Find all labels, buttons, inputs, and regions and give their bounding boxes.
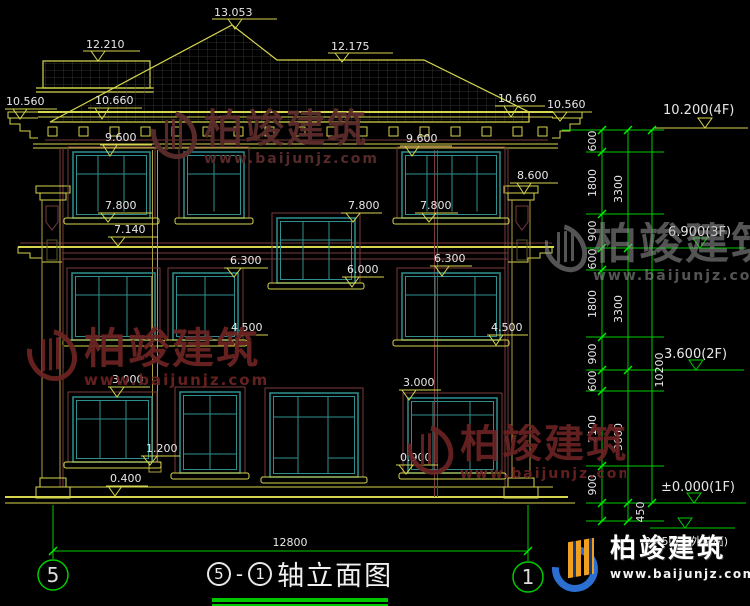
svg-text:12.210: 12.210 (86, 38, 125, 51)
svg-text:0.400: 0.400 (110, 472, 142, 485)
dim-ticks (598, 126, 656, 525)
svg-text:1800: 1800 (586, 169, 599, 197)
svg-text:±0.000(1F): ±0.000(1F) (661, 480, 735, 495)
site-logo-url: www.baijunjz.com (610, 568, 750, 580)
title-axis-right: 1 (248, 562, 272, 586)
svg-text:10.660: 10.660 (95, 94, 134, 107)
window-2f-left (63, 268, 164, 346)
svg-text:600: 600 (586, 249, 599, 270)
svg-text:600: 600 (586, 131, 599, 152)
svg-text:450: 450 (634, 502, 647, 523)
drawing-title: 5 - 1 轴立面图 (170, 554, 430, 606)
flag-3000-left: 3.000 (108, 373, 150, 397)
svg-text:4.500: 4.500 (231, 321, 263, 334)
svg-text:0.900: 0.900 (400, 451, 432, 464)
window-1f-right (399, 393, 506, 479)
title-axis-left: 5 (207, 562, 231, 586)
svg-text:9.600: 9.600 (406, 132, 438, 145)
title-text: 轴立面图 (277, 554, 393, 593)
window-2f-right (393, 268, 509, 346)
window-stair (268, 213, 364, 289)
svg-text:6.900(3F): 6.900(3F) (668, 225, 731, 240)
flag-12175: 12.175 (328, 40, 393, 62)
svg-text:9.600: 9.600 (105, 131, 137, 144)
pilaster-left (36, 186, 70, 498)
svg-text:10200: 10200 (653, 353, 666, 388)
site-logo: 柏竣建筑 www.baijunjz.com (552, 536, 750, 596)
bottom-dim-label: 12800 (273, 536, 308, 549)
flag-f1: ±0.000(1F) (653, 480, 746, 503)
flag-0400: 0.400 (106, 472, 148, 496)
mid-floor-band (18, 243, 554, 262)
window-3f-left (64, 147, 159, 224)
svg-text:900: 900 (586, 344, 599, 365)
svg-text:1800: 1800 (586, 290, 599, 318)
svg-text:10.660: 10.660 (498, 92, 537, 105)
svg-text:4.500: 4.500 (491, 321, 523, 334)
svg-text:12.175: 12.175 (331, 40, 370, 53)
svg-text:10.560: 10.560 (547, 98, 586, 111)
svg-text:3600: 3600 (612, 423, 625, 451)
svg-text:8.600: 8.600 (517, 169, 549, 182)
svg-text:3300: 3300 (612, 175, 625, 203)
svg-text:900: 900 (586, 475, 599, 496)
svg-text:10.560: 10.560 (6, 95, 45, 108)
eave-cornice (8, 112, 582, 148)
svg-text:6.000: 6.000 (347, 263, 379, 276)
svg-text:7.800: 7.800 (420, 199, 452, 212)
site-logo-brand: 柏竣建筑 (610, 536, 750, 562)
svg-text:600: 600 (586, 371, 599, 392)
svg-text:7.800: 7.800 (348, 199, 380, 212)
flag-f3: 6.900(3F) (660, 225, 746, 248)
svg-text:6.300: 6.300 (434, 252, 466, 265)
svg-text:3.600(2F): 3.600(2F) (664, 347, 727, 362)
window-1f-centre (261, 388, 367, 483)
svg-text:7.140: 7.140 (114, 223, 146, 236)
plinth-ground (5, 487, 575, 503)
dimension-chains: 600 1800 900 600 1800 900 600 2100 900 4… (562, 126, 666, 525)
title-underline-thick (212, 598, 388, 602)
axis-number-right: 1 (522, 565, 535, 589)
floor-flags: 10.200(4F) 6.900(3F) 3.600(2F) ±0.000(1F… (640, 103, 748, 548)
flag-peak: 13.053 (212, 6, 277, 29)
eave-return-left (8, 112, 38, 138)
flag-8600: 8.600 (510, 169, 558, 194)
window-1f-left (64, 392, 161, 468)
svg-text:6.300: 6.300 (230, 254, 262, 267)
svg-text:10.200(4F): 10.200(4F) (663, 103, 734, 118)
site-logo-icon (552, 536, 604, 596)
cad-drawing: 13.053 12.210 12.175 10.560 10.660 10.66… (0, 0, 750, 606)
svg-text:3300: 3300 (612, 295, 625, 323)
chain-segment-labels: 600 1800 900 600 1800 900 600 2100 900 4… (586, 131, 666, 523)
svg-text:900: 900 (586, 221, 599, 242)
title-dash: - (236, 562, 243, 586)
flag-f2: 3.600(2F) (656, 347, 744, 370)
flag-f4: 10.200(4F) (653, 103, 748, 128)
svg-text:2100: 2100 (586, 415, 599, 443)
window-3f-right (393, 147, 509, 224)
flag-label: 13.053 (214, 6, 253, 19)
pilaster-right-shield (516, 206, 528, 230)
axis-number-left: 5 (47, 563, 60, 587)
elevation-drawing-canvas: 13.053 12.210 12.175 10.560 10.660 10.66… (0, 0, 750, 606)
pilaster-left-shield (46, 206, 58, 230)
flag-0900: 0.900 (396, 451, 438, 474)
window-2f-mid (164, 268, 247, 346)
walls (5, 148, 575, 503)
windows (63, 147, 509, 483)
svg-text:3.000: 3.000 (112, 373, 144, 386)
svg-text:3.000: 3.000 (403, 376, 435, 389)
window-3f-mid (175, 147, 253, 224)
svg-text:1.200: 1.200 (146, 442, 178, 455)
flag-10560-left: 10.560 (5, 95, 57, 119)
window-1f-tall (171, 387, 249, 479)
svg-text:7.800: 7.800 (105, 199, 137, 212)
flag-12210: 12.210 (83, 38, 140, 61)
